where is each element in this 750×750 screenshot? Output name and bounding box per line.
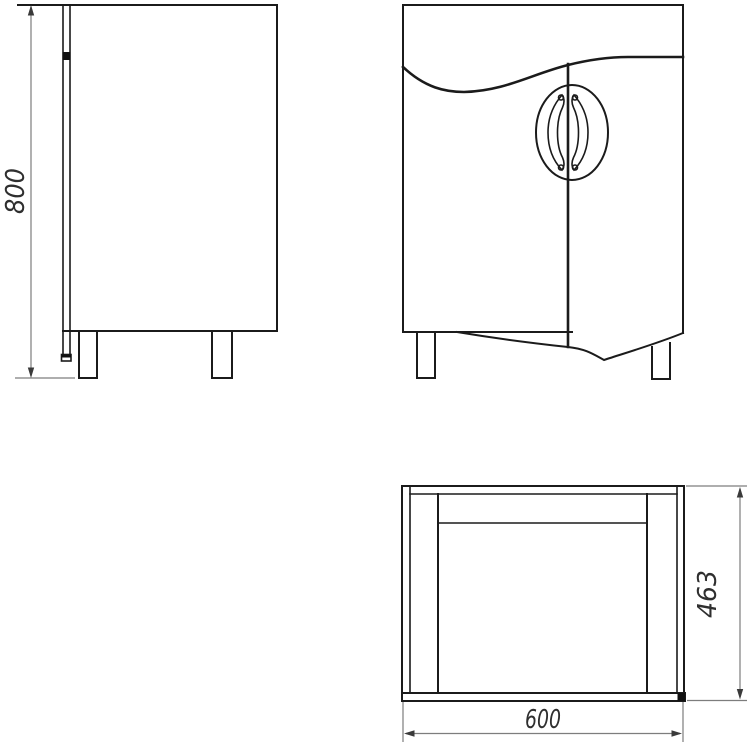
technical-drawing-page: 800 [0,0,750,750]
side-body-outline [63,5,277,331]
height-arrow-top [28,5,34,16]
top-front-strip [402,693,685,701]
cabinet-three-view-drawing: 800 [0,0,750,750]
height-dimension-label: 800 [1,168,31,214]
top-front-strip-cap [678,693,686,701]
front-view [403,5,683,379]
handle-right-grip [572,95,588,170]
width-arrow-left [404,730,415,736]
height-arrow-bottom [28,368,34,379]
door-handle [536,85,608,180]
height-dimension: 800 [1,5,75,378]
side-handle-block [63,52,71,60]
handle-screw-bottom-left [559,165,564,170]
depth-dimension: 463 [686,486,747,701]
depth-arrow-top [737,487,743,498]
side-front-leg [79,331,97,378]
handle-screw-bottom-right [573,165,578,170]
front-right-leg [652,343,670,379]
front-body-outline [403,5,683,333]
handle-screw-top-left [559,95,564,100]
front-door-top-wave [403,57,683,92]
width-dimension: 600 [403,702,683,742]
side-back-leg [212,331,232,378]
width-arrow-right [672,730,683,736]
handle-left-grip [548,95,564,170]
width-dimension-label: 600 [525,705,561,735]
handle-screw-top-right [573,95,578,100]
top-view [402,486,685,701]
front-left-leg [417,332,435,378]
top-outer-rect [402,486,684,693]
side-door-foot-cap [62,355,72,358]
depth-dimension-label: 463 [693,570,723,618]
front-door-bottom-wave [457,332,683,360]
depth-arrow-bottom [737,689,743,700]
side-view [18,5,277,378]
